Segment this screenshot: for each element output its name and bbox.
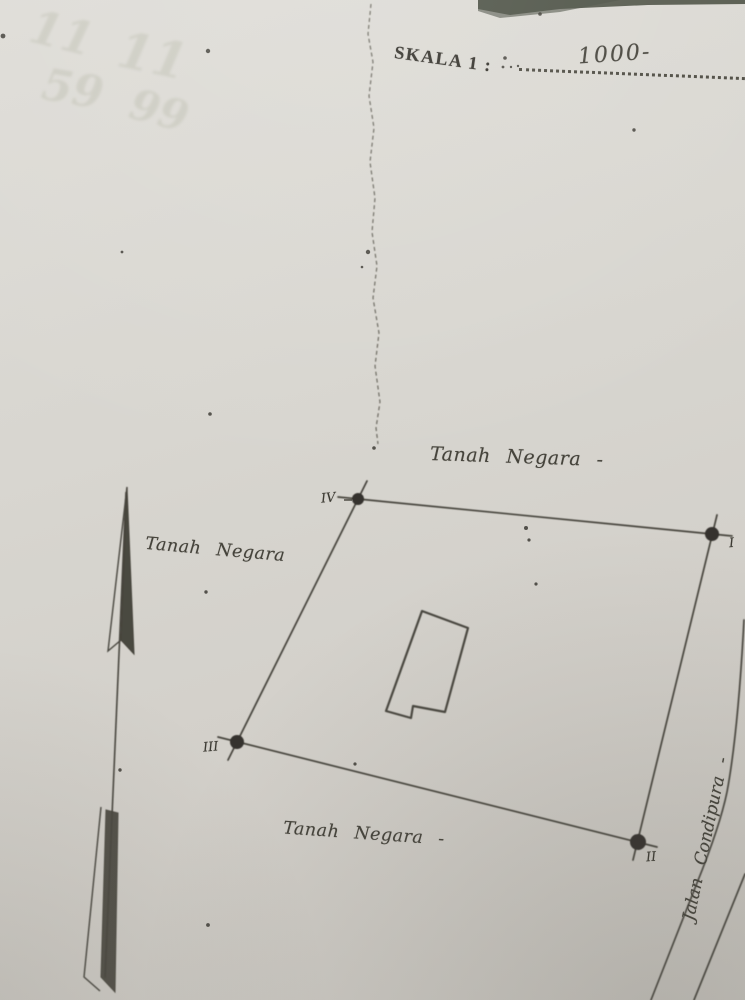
corner-label-iv: IV xyxy=(320,490,336,506)
corner-mark-iii xyxy=(230,735,244,749)
corner-mark-i xyxy=(705,527,719,541)
corner-label-iii: III xyxy=(202,739,219,755)
north-arrow xyxy=(84,487,134,992)
scanned-survey-sketch: 11 11 59 99 SKALA 1 : 1000- Tanah Negara… xyxy=(0,0,745,1000)
road-edges xyxy=(651,620,745,1000)
corner-label-ii: II xyxy=(645,850,657,866)
ghost-pencil-mark: 59 xyxy=(38,59,107,120)
ink-specks xyxy=(1,12,636,927)
parcel-boundary xyxy=(218,481,732,860)
sketch-linework xyxy=(0,0,745,1000)
corner-mark-ii xyxy=(630,834,646,850)
photo-edge-band-shadow xyxy=(478,0,620,18)
paper-crease-line xyxy=(368,4,380,444)
corner-mark-iv xyxy=(352,493,364,505)
corner-marks xyxy=(230,493,719,850)
scale-value-handwritten: 1000- xyxy=(577,39,652,69)
building-outline xyxy=(386,611,468,718)
